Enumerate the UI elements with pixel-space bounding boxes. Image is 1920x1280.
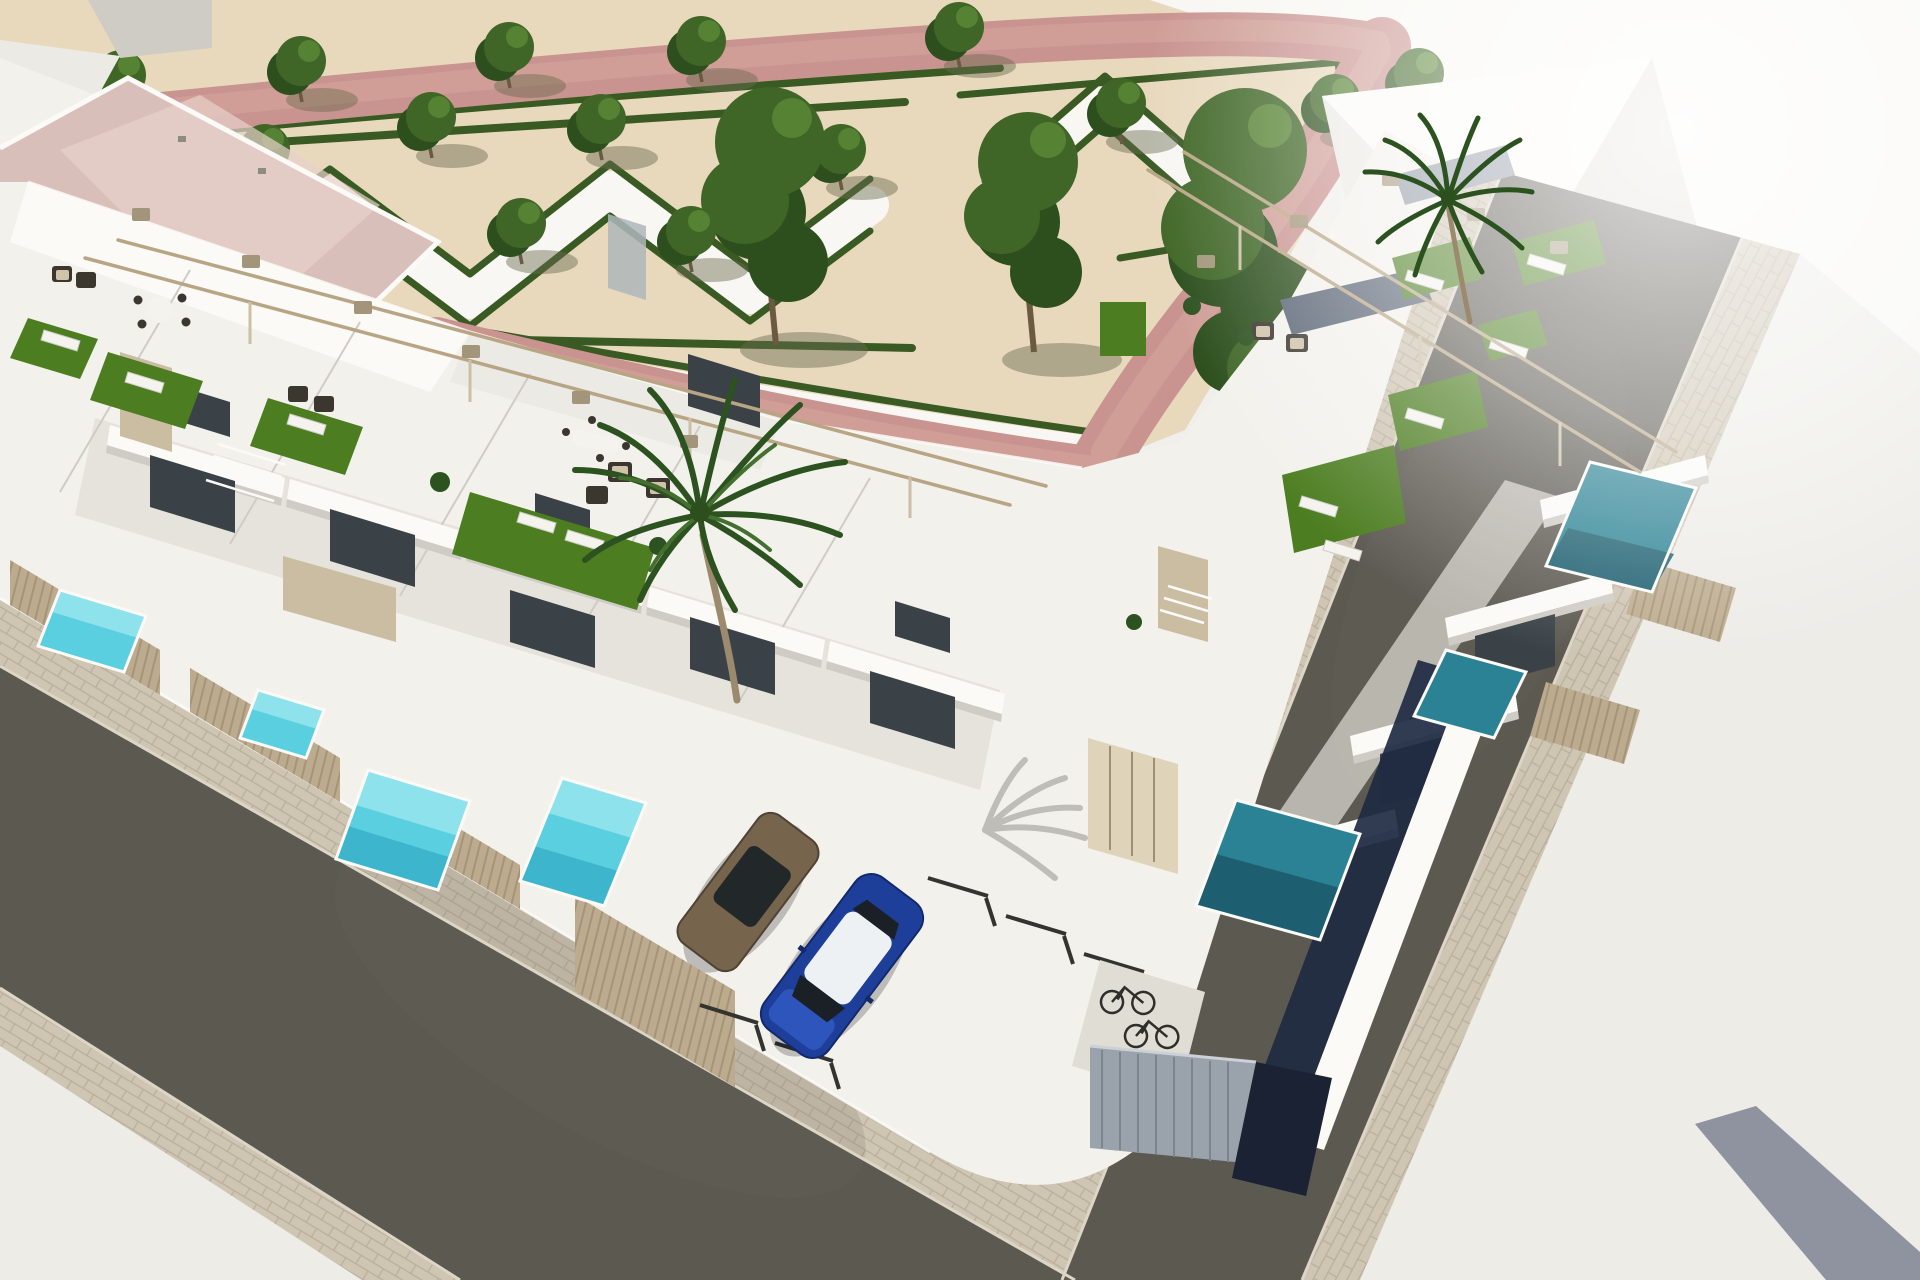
aerial-render	[0, 0, 1920, 1280]
glass-divider	[608, 214, 646, 300]
render-canvas	[0, 0, 1920, 1280]
